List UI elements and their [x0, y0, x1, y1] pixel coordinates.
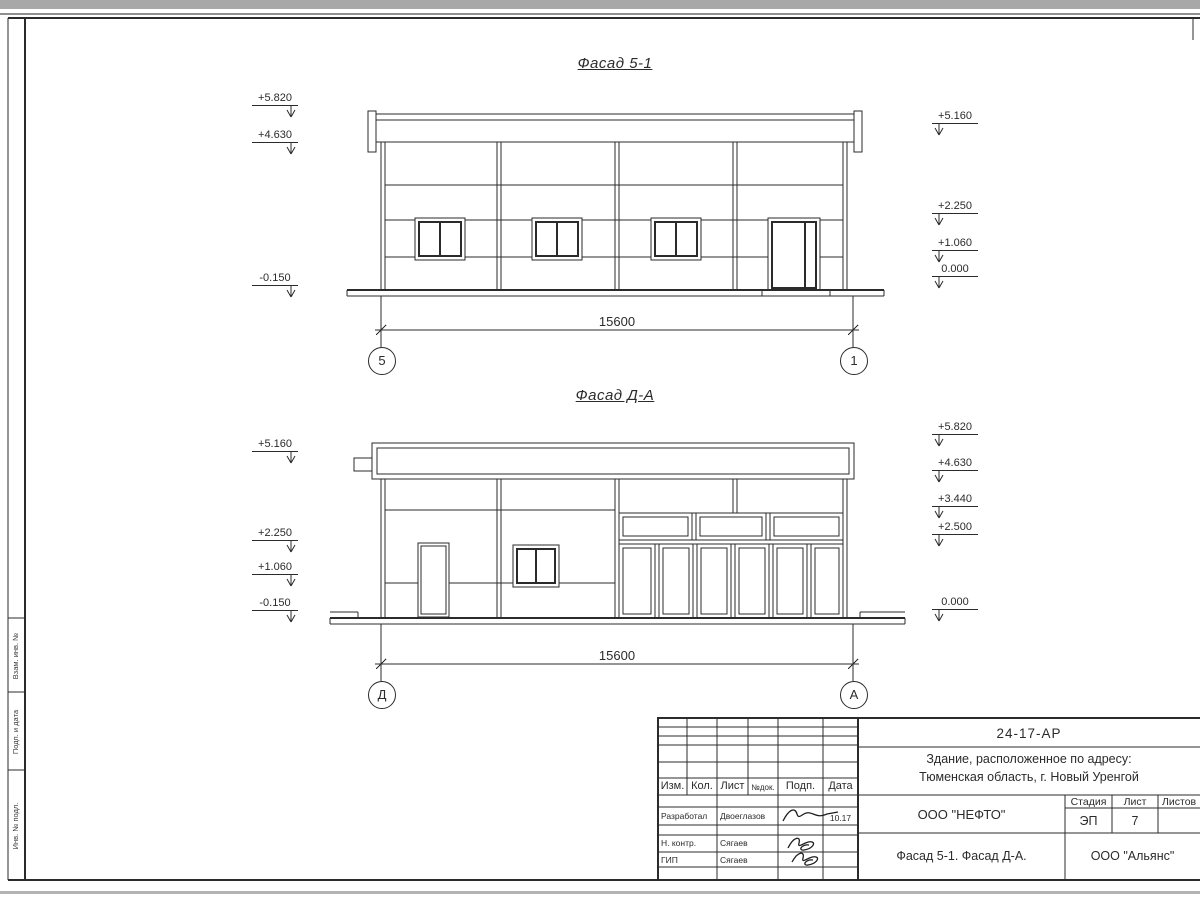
window [651, 218, 701, 260]
elevation-arrow-icon [933, 534, 945, 547]
door [418, 543, 449, 617]
col-list: Лист [717, 780, 748, 792]
elevation-value: -0.150 [252, 272, 298, 286]
window [513, 545, 559, 587]
doc-number: 24-17-АР [858, 726, 1200, 741]
elevation-arrow-icon [933, 250, 945, 263]
axis-bubble-1: 1 [840, 347, 868, 375]
elevation-value: +4.630 [252, 129, 298, 143]
address-line2: Тюменская область, г. Новый Уренгой [862, 770, 1196, 784]
row-role: Н. контр. [661, 838, 716, 848]
facade2-title: Фасад Д-А [480, 387, 750, 404]
elevation-value: +2.250 [252, 527, 298, 541]
axis-bubble-a: А [840, 681, 868, 709]
elevation-arrow-icon [933, 506, 945, 519]
elevation-arrow-icon [933, 276, 945, 289]
address-line1: Здание, расположенное по адресу: [862, 752, 1196, 766]
elevation-mark: +2.500 [932, 521, 978, 535]
row-name: Сягаев [720, 855, 777, 865]
elevation-value: +4.630 [932, 457, 978, 471]
col-ndok: №док. [748, 783, 778, 792]
col-izm: Изм. [658, 780, 687, 792]
elevation-value: +5.160 [252, 438, 298, 452]
drawing-sheet: Фасад 5-1 Фасад Д-А +5.820 +4.630 -0.150… [0, 0, 1200, 900]
facade-d-a-drawing [330, 443, 905, 681]
elevation-arrow-icon [285, 540, 297, 553]
elevation-value: +5.160 [932, 110, 978, 124]
elevation-arrow-icon [285, 610, 297, 623]
elevation-mark: +5.160 [252, 438, 298, 452]
elevation-mark: +4.630 [252, 129, 298, 143]
org-name: ООО "НЕФТО" [858, 807, 1065, 822]
elevation-mark: +2.250 [252, 527, 298, 541]
col-kol: Кол. [687, 780, 717, 792]
facade-5-1-drawing [347, 111, 884, 347]
elevation-mark: 0.000 [932, 263, 978, 277]
elevation-arrow-icon [285, 574, 297, 587]
row-role: ГИП [661, 855, 716, 865]
sheet-frame [8, 18, 1200, 880]
side-strip-label: Взам. инв. № [11, 620, 21, 692]
elevation-arrow-icon [933, 434, 945, 447]
signature-gip [792, 853, 818, 865]
elevation-mark: -0.150 [252, 272, 298, 286]
elevation-value: +5.820 [252, 92, 298, 106]
elevation-mark: 0.000 [932, 596, 978, 610]
elevation-value: +2.500 [932, 521, 978, 535]
elevation-arrow-icon [285, 451, 297, 464]
stage-label: Стадия [1065, 796, 1112, 808]
elevation-mark: +5.820 [932, 421, 978, 435]
elevation-mark: +2.250 [932, 200, 978, 214]
signature-ncontr [788, 838, 814, 850]
row-role: Разработал [661, 811, 716, 821]
elevation-value: +2.250 [932, 200, 978, 214]
window [532, 218, 582, 260]
elevation-arrow-icon [933, 123, 945, 136]
elevation-value: 0.000 [932, 596, 978, 610]
side-strip-label: Инв. № подл. [11, 790, 21, 862]
company-name: ООО "Альянс" [1065, 849, 1200, 863]
col-podp: Подп. [778, 780, 823, 792]
elevation-mark: +1.060 [932, 237, 978, 251]
facade1-title: Фасад 5-1 [480, 55, 750, 72]
elevation-value: +1.060 [932, 237, 978, 251]
elevation-arrow-icon [285, 285, 297, 298]
elevation-mark: +5.820 [252, 92, 298, 106]
elevation-value: 0.000 [932, 263, 978, 277]
elevation-mark: +4.630 [932, 457, 978, 471]
elevation-value: -0.150 [252, 597, 298, 611]
elevation-value: +1.060 [252, 561, 298, 575]
elevation-arrow-icon [285, 142, 297, 155]
door [768, 218, 820, 290]
window [415, 218, 465, 260]
elevation-value: +3.440 [932, 493, 978, 507]
storefront [619, 513, 843, 618]
drawing-title: Фасад 5-1. Фасад Д-А. [858, 849, 1065, 863]
elevation-mark: +5.160 [932, 110, 978, 124]
elevation-arrow-icon [933, 609, 945, 622]
row-date: 10.17 [823, 813, 858, 823]
dimension-text: 15600 [567, 314, 667, 329]
dimension-text: 15600 [567, 648, 667, 663]
elevation-arrow-icon [285, 105, 297, 118]
sheets-label: Листов [1162, 796, 1200, 808]
sheet-label: Лист [1112, 796, 1158, 808]
side-strip-label: Подп. и дата [11, 696, 21, 768]
row-name: Сягаев [720, 838, 777, 848]
row-name: Двоеглазов [720, 811, 777, 821]
elevation-value: +5.820 [932, 421, 978, 435]
elevation-mark: +1.060 [252, 561, 298, 575]
sheet-value: 7 [1112, 814, 1158, 828]
stage-value: ЭП [1065, 814, 1112, 828]
elevation-arrow-icon [933, 213, 945, 226]
elevation-mark: +3.440 [932, 493, 978, 507]
axis-bubble-d: Д [368, 681, 396, 709]
axis-bubble-5: 5 [368, 347, 396, 375]
elevation-arrow-icon [933, 470, 945, 483]
elevation-mark: -0.150 [252, 597, 298, 611]
col-data: Дата [823, 780, 858, 792]
